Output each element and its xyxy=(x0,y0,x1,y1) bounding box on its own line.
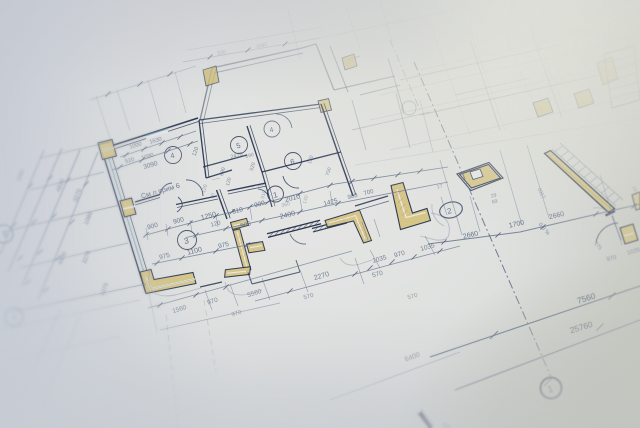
svg-text:570: 570 xyxy=(303,293,315,302)
svg-text:4: 4 xyxy=(169,151,175,161)
svg-text:900: 900 xyxy=(172,216,185,226)
svg-text:520: 520 xyxy=(249,162,257,172)
svg-text:120: 120 xyxy=(192,146,201,157)
svg-text:1560: 1560 xyxy=(172,304,188,315)
svg-text:520: 520 xyxy=(217,49,227,57)
svg-text:5: 5 xyxy=(235,141,241,151)
svg-text:69: 69 xyxy=(491,198,498,205)
svg-text:90: 90 xyxy=(209,192,215,199)
svg-text:См л прим 6: См л прим 6 xyxy=(140,183,181,201)
svg-text:1035: 1035 xyxy=(627,247,640,256)
svg-text:4: 4 xyxy=(269,127,275,135)
svg-text:570: 570 xyxy=(407,293,419,302)
svg-text:810: 810 xyxy=(231,206,244,216)
svg-text:120: 120 xyxy=(307,155,315,165)
svg-text:1250: 1250 xyxy=(200,211,217,222)
svg-text:1425: 1425 xyxy=(323,197,339,207)
svg-text:2660: 2660 xyxy=(462,230,479,240)
svg-text:750: 750 xyxy=(325,167,333,177)
svg-text:6400: 6400 xyxy=(404,352,421,364)
svg-text:690: 690 xyxy=(245,152,255,160)
svg-text:2270: 2270 xyxy=(313,271,330,282)
svg-text:1090: 1090 xyxy=(256,42,269,50)
svg-text:2470: 2470 xyxy=(230,151,244,160)
svg-text:3270: 3270 xyxy=(82,250,93,265)
svg-text:7560: 7560 xyxy=(576,291,597,306)
svg-text:360: 360 xyxy=(281,201,291,209)
svg-text:3270: 3270 xyxy=(73,188,84,203)
svg-text:2: 2 xyxy=(446,206,452,216)
svg-text:120: 120 xyxy=(210,220,222,228)
svg-text:25760: 25760 xyxy=(569,319,595,335)
svg-text:6: 6 xyxy=(289,157,295,167)
svg-text:1560: 1560 xyxy=(16,169,26,183)
svg-text:5560: 5560 xyxy=(247,288,263,299)
svg-text:0317: 0317 xyxy=(536,187,547,200)
svg-text:690: 690 xyxy=(219,167,227,177)
svg-text:2660: 2660 xyxy=(548,211,565,221)
svg-text:1090: 1090 xyxy=(141,152,155,161)
svg-text:1075: 1075 xyxy=(100,282,111,297)
svg-text:б: б xyxy=(11,313,17,323)
svg-text:3090: 3090 xyxy=(143,160,159,171)
svg-text:570: 570 xyxy=(371,270,384,280)
svg-text:975: 975 xyxy=(159,252,172,262)
svg-text:17: 17 xyxy=(436,183,443,190)
svg-text:1700: 1700 xyxy=(508,219,525,229)
svg-text:1: 1 xyxy=(547,384,554,395)
svg-text:905: 905 xyxy=(240,220,253,230)
svg-text:1: 1 xyxy=(272,190,278,200)
svg-text:900: 900 xyxy=(146,222,159,232)
svg-text:510: 510 xyxy=(260,190,268,200)
svg-text:970: 970 xyxy=(606,255,618,264)
svg-text:4400: 4400 xyxy=(58,251,69,266)
svg-text:1000: 1000 xyxy=(129,141,143,150)
svg-text:1035: 1035 xyxy=(372,254,388,265)
svg-text:2400: 2400 xyxy=(279,210,296,221)
svg-text:970: 970 xyxy=(393,250,406,260)
svg-text:140: 140 xyxy=(302,195,310,205)
svg-text:120: 120 xyxy=(201,184,209,194)
svg-text:275: 275 xyxy=(593,241,603,251)
svg-text:970: 970 xyxy=(206,296,219,306)
svg-text:900: 900 xyxy=(253,200,266,210)
svg-text:700: 700 xyxy=(363,189,375,197)
svg-text:0,8 %: 0,8 % xyxy=(537,222,551,237)
svg-text:120: 120 xyxy=(225,177,233,187)
